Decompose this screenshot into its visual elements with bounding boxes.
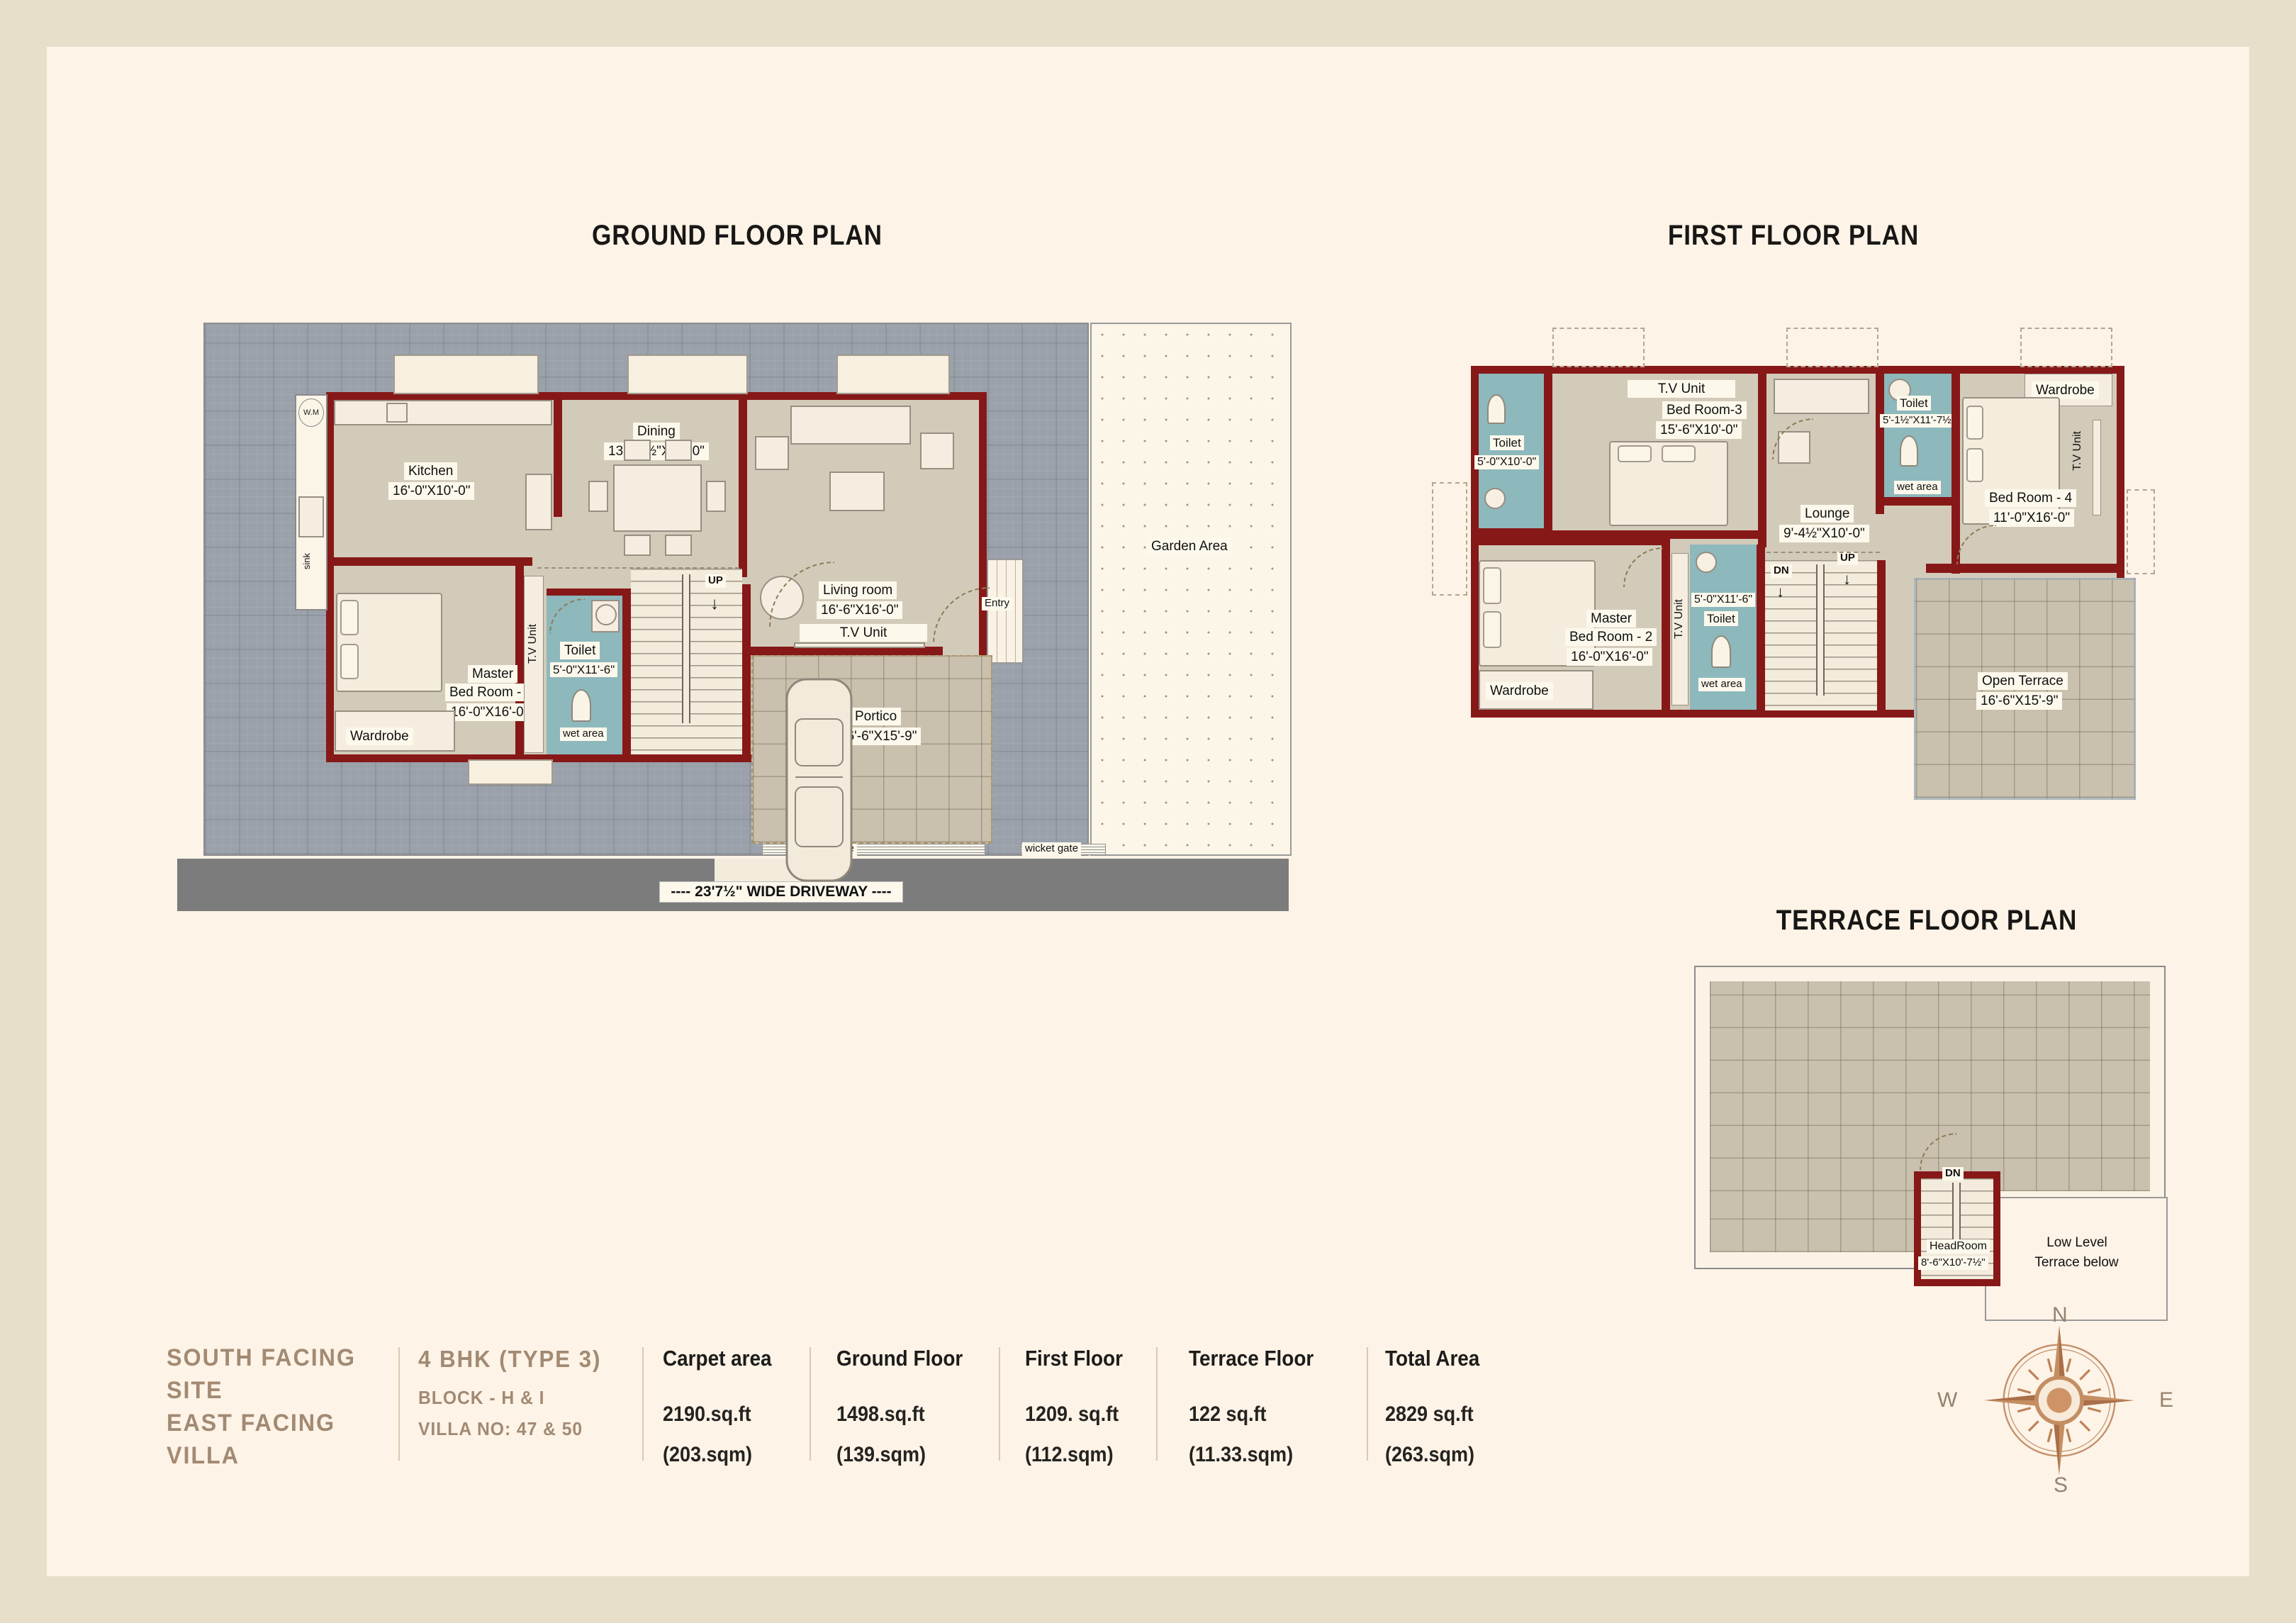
pillow xyxy=(1618,445,1652,462)
sink-unit xyxy=(298,496,324,537)
gf-toilet-label: Toilet xyxy=(560,642,600,659)
stair-arrow: ↓ xyxy=(1776,583,1784,601)
wall-segment xyxy=(742,584,751,754)
col-total-value: 2829 sq.ft xyxy=(1385,1402,1474,1427)
chair xyxy=(588,481,608,512)
site-facing-line3: EAST FACING xyxy=(167,1410,335,1437)
pillow xyxy=(1483,567,1501,604)
wall-segment xyxy=(1926,564,2124,573)
wall-segment xyxy=(622,589,631,754)
ff-wet-area3-label: wet area xyxy=(1698,678,1745,691)
ff-master-dim: 16'-0"X16'-0" xyxy=(1567,648,1652,666)
col-terrace-header: Terrace Floor xyxy=(1189,1346,1314,1371)
ff-tv-unit-mid-label: T.V Unit xyxy=(1673,599,1686,639)
gf-master-dim: 16'-0"X16'-0" xyxy=(447,703,532,721)
wall-segment xyxy=(1544,374,1552,544)
col-ground-value: 1498.sq.ft xyxy=(836,1402,925,1427)
bhk-type: 4 BHK (TYPE 3) xyxy=(418,1346,601,1373)
chair xyxy=(665,440,692,461)
col-terrace-value: 122 sq.ft xyxy=(1189,1402,1267,1427)
window xyxy=(627,355,748,394)
chair xyxy=(706,481,726,512)
site-facing-line4: VILLA xyxy=(167,1442,240,1470)
gf-master-label2: Bed Room - 1 xyxy=(445,684,537,701)
tf-low-level-label2: Terrace below xyxy=(2015,1255,2139,1271)
pillow xyxy=(340,644,359,679)
info-divider xyxy=(1156,1347,1158,1461)
tf-dn-label: DN xyxy=(1942,1167,1964,1181)
wall-segment xyxy=(1757,545,1765,715)
col-first-header: First Floor xyxy=(1025,1346,1123,1371)
wall-segment xyxy=(1876,368,1884,514)
stair-rail xyxy=(1952,1183,1961,1246)
gf-master-label1: Master xyxy=(468,665,517,683)
window-projection xyxy=(1786,328,1878,367)
wall-segment xyxy=(1877,560,1886,715)
sofa xyxy=(790,406,911,445)
ff-terrace-label: Open Terrace xyxy=(1978,672,2068,690)
ff-wardrobe-bl-label: Wardrobe xyxy=(1486,682,1553,700)
wall-segment xyxy=(330,557,532,566)
ff-br4-dim: 11'-0"X16'-0" xyxy=(1989,509,2074,527)
ff-up-label: UP xyxy=(1837,552,1858,565)
window-projection xyxy=(1552,328,1645,367)
tf-low-level-label1: Low Level xyxy=(2024,1235,2130,1251)
armchair xyxy=(755,436,789,470)
info-divider xyxy=(642,1347,644,1461)
info-divider xyxy=(398,1347,400,1461)
ff-br3-dim: 15'-6"X10'-0" xyxy=(1656,421,1742,439)
block-label: BLOCK - H & I xyxy=(418,1387,544,1409)
wall-segment xyxy=(1884,497,1951,506)
wall-segment xyxy=(1479,537,1662,545)
ff-toilet1-dim: 5'-0"X10'-0" xyxy=(1474,455,1539,469)
terrace-floor-title: TERRACE FLOOR PLAN xyxy=(1771,905,2083,937)
floor-transition xyxy=(1766,552,1880,553)
ff-dn-label: DN xyxy=(1771,564,1792,578)
window xyxy=(393,355,539,394)
ff-master-label2: Bed Room - 2 xyxy=(1565,628,1657,646)
window-projection xyxy=(2020,328,2112,367)
col-first-value: 1209. sq.ft xyxy=(1025,1402,1119,1427)
pillow xyxy=(1966,448,1983,482)
gf-tv-unit-vertical-label: T.V Unit xyxy=(527,624,539,664)
col-ground-header: Ground Floor xyxy=(836,1346,963,1371)
info-divider xyxy=(999,1347,1000,1461)
gf-dining-dim: 13'-10½"X10'-0" xyxy=(604,442,709,460)
gf-garden-label: Garden Area xyxy=(1147,537,1232,555)
tf-headroom-dim: 8'-6"X10'-7½" xyxy=(1918,1256,1988,1270)
col-total-header: Total Area xyxy=(1385,1346,1479,1371)
gf-wet-area-label: wet area xyxy=(560,727,607,741)
first-floor-title: FIRST FLOOR PLAN xyxy=(1637,220,1949,252)
gf-wardrobe-label: Wardrobe xyxy=(346,727,413,745)
stair-arrow: ↓ xyxy=(1843,570,1851,589)
info-divider xyxy=(810,1347,811,1461)
window xyxy=(468,759,553,785)
chair xyxy=(624,535,651,556)
washing-machine-icon: W.M xyxy=(298,398,324,427)
ff-toilet3-dim: 5'-0"X11'-6" xyxy=(1691,593,1755,607)
compass-north-label: N xyxy=(2052,1303,2068,1327)
toilet-icon xyxy=(1487,394,1506,424)
ff-lounge-label: Lounge xyxy=(1801,505,1854,523)
window-projection xyxy=(1432,482,1467,596)
chair xyxy=(665,535,692,556)
ff-terrace-dim: 16'-6"X15'-9" xyxy=(1976,692,2062,710)
col-carpet-sqm: (203.sqm) xyxy=(663,1443,752,1467)
washbasin-icon xyxy=(595,604,617,625)
pillow xyxy=(340,600,359,635)
tf-headroom-label: HeadRoom xyxy=(1927,1239,1990,1254)
wall-segment xyxy=(515,566,524,754)
ff-wet-area2-label: wet area xyxy=(1894,481,1941,494)
villa-no-label: VILLA NO: 47 & 50 xyxy=(418,1418,583,1440)
site-facing-line1: SOUTH FACING xyxy=(167,1344,356,1372)
wall-segment xyxy=(1951,368,1960,574)
gf-kitchen-dim: 16'-0"X10'-0" xyxy=(388,482,474,500)
ff-tv-unit-right-label: T.V Unit xyxy=(2071,431,2084,471)
tf-terrace-tiles xyxy=(1710,1191,1917,1252)
gf-wicket-gate-label: wicket gate xyxy=(1022,842,1081,856)
ff-toilet2-label: Toilet xyxy=(1897,396,1931,411)
stair-rail xyxy=(1816,564,1825,696)
compass-west-label: W xyxy=(1937,1388,1957,1412)
pillow xyxy=(1483,611,1501,648)
gf-garden-area xyxy=(1090,323,1292,856)
kitchen-counter xyxy=(334,400,552,425)
ff-br3-label: Bed Room-3 xyxy=(1662,401,1747,419)
washbasin-icon xyxy=(1484,488,1506,509)
sofa xyxy=(1774,379,1869,414)
ff-master-label1: Master xyxy=(1586,610,1636,628)
ground-floor-title: GROUND FLOOR PLAN xyxy=(581,220,893,252)
compass-south-label: S xyxy=(2054,1473,2068,1497)
info-divider xyxy=(1367,1347,1368,1461)
col-carpet-header: Carpet area xyxy=(663,1346,772,1371)
chair xyxy=(624,440,651,461)
ff-toilet1-room xyxy=(1479,374,1544,535)
ff-tv-unit-top-label: T.V Unit xyxy=(1628,380,1735,398)
coffee-table xyxy=(829,472,885,511)
col-ground-sqm: (139.sqm) xyxy=(836,1443,926,1467)
gf-entry-steps xyxy=(987,559,1024,664)
floor-plan-sheet: GROUND FLOOR PLAN FIRST FLOOR PLAN TERRA… xyxy=(0,0,2296,1623)
ff-toilet1-label: Toilet xyxy=(1490,435,1524,450)
ff-toilet3-label: Toilet xyxy=(1704,611,1738,626)
gf-sink-label: sink xyxy=(301,553,312,569)
window xyxy=(836,355,950,394)
compass-rose-icon xyxy=(1974,1315,2144,1485)
gf-dining-label: Dining xyxy=(633,423,680,440)
stair-arrow: ↓ xyxy=(710,594,719,614)
gf-kitchen-label: Kitchen xyxy=(404,462,457,480)
window-projection xyxy=(2127,489,2155,574)
tv-unit-strip xyxy=(2093,420,2101,515)
toilet-icon xyxy=(1900,435,1918,467)
pillow xyxy=(1662,445,1696,462)
stair-rail xyxy=(682,574,690,723)
toilet-icon xyxy=(1711,635,1731,668)
site-facing-line2: SITE xyxy=(167,1377,223,1405)
tv-shelf xyxy=(794,642,925,648)
col-terrace-sqm: (11.33.sqm) xyxy=(1189,1443,1293,1467)
tv-unit-strip xyxy=(524,576,544,753)
ff-lounge-dim: 9'-4½"X10'-0" xyxy=(1779,525,1869,542)
stove xyxy=(525,474,552,530)
wall-segment xyxy=(547,589,631,596)
pillow xyxy=(1966,406,1983,440)
dining-table xyxy=(613,464,702,532)
col-total-sqm: (263.sqm) xyxy=(1385,1443,1474,1467)
washbasin-icon xyxy=(1696,552,1717,573)
gf-toilet-dim: 5'-0"X11'-6" xyxy=(550,662,617,677)
gf-up-label: UP xyxy=(705,574,726,588)
compass-east-label: E xyxy=(2159,1388,2173,1412)
armchair xyxy=(920,433,954,469)
ff-toilet2-dim: 5'-1½"X11'-7½" xyxy=(1880,414,1958,428)
kitchen-sink xyxy=(386,403,408,423)
col-first-sqm: (112.sqm) xyxy=(1025,1443,1114,1467)
toilet-icon xyxy=(571,689,591,722)
car-icon xyxy=(778,674,860,886)
wall-segment xyxy=(554,400,562,517)
wall-segment xyxy=(1758,374,1766,547)
wall-segment xyxy=(1479,528,1544,537)
wall-segment xyxy=(739,400,747,577)
col-carpet-value: 2190.sq.ft xyxy=(663,1402,751,1427)
ff-br4-label: Bed Room - 4 xyxy=(1985,489,2076,507)
